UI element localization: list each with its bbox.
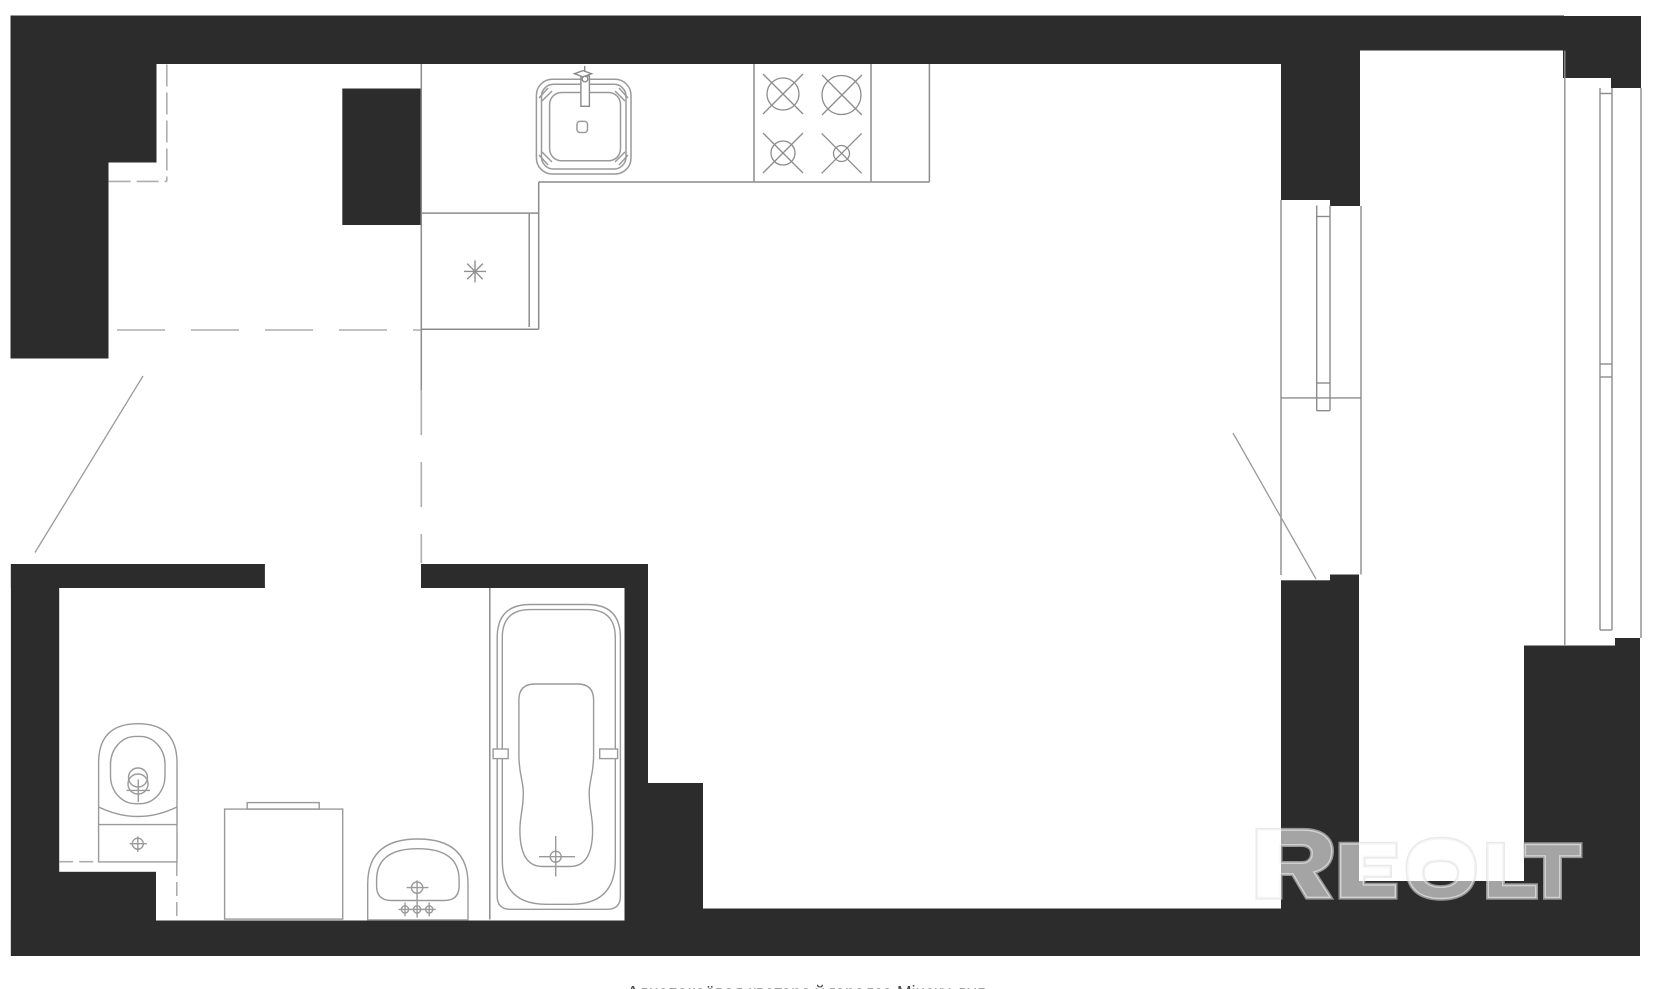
- svg-text:Аднапакаёвая кватэра ў горадзе: Аднапакаёвая кватэра ў горадзе Мінску, в…: [627, 982, 991, 989]
